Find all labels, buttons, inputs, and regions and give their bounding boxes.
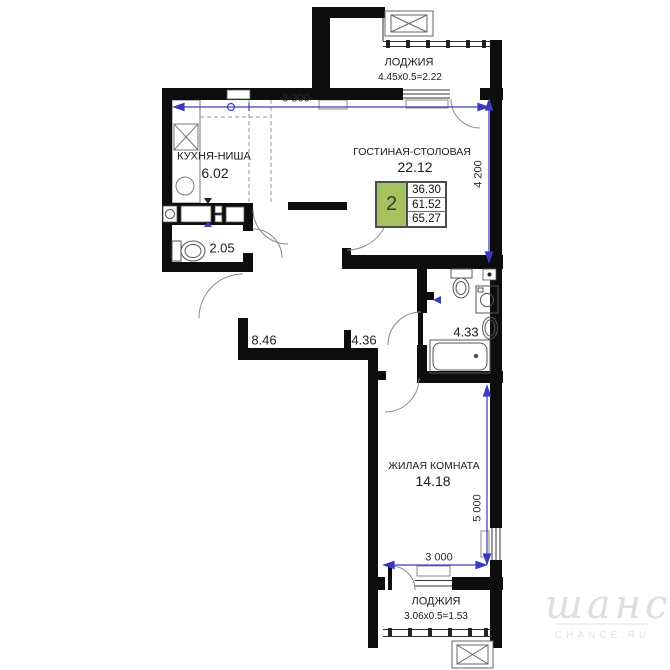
apartment-summary-box: 2 36.30 61.52 65.27	[375, 181, 447, 228]
wc-fixtures	[172, 241, 205, 261]
room-label-kitchen: КУХНЯ-НИША	[177, 152, 251, 163]
dimension-top-width: 8 300	[282, 94, 310, 105]
watermark-script: шанс	[545, 582, 660, 628]
room-area-bedroom: 14.18	[415, 474, 450, 488]
loggia-top-label: ЛОДЖИЯ	[385, 58, 434, 69]
room-label-bedroom: ЖИЛАЯ КОМНАТА	[388, 461, 479, 472]
summary-areas: 36.30 61.52 65.27	[408, 183, 445, 226]
room-area-living: 22.12	[397, 160, 432, 174]
dimension-right-height: 4 200	[474, 160, 485, 188]
dimension-bedroom-height: 5 000	[473, 494, 484, 522]
loggia-bottom-label: ЛОДЖИЯ	[412, 597, 461, 608]
watermark: шанс CHANCE.RU	[545, 582, 660, 641]
total-area-value: 65.27	[408, 212, 445, 226]
vent-shaft-top	[385, 11, 433, 36]
room-area-wc: 2.05	[209, 242, 234, 255]
room-label-living: ГОСТИНАЯ-СТОЛОВАЯ	[353, 147, 471, 158]
rooms-count-cell: 2	[377, 183, 408, 226]
floor-plan-drawing	[0, 0, 670, 670]
area-without-loggia-value: 61.52	[408, 198, 445, 213]
bathroom-fixtures	[430, 269, 498, 373]
loggia-top-calc: 4.45x0.5=2.22	[378, 73, 442, 83]
loggia-bottom-calc: 3.06x0.5=1.53	[404, 612, 468, 622]
watermark-site: CHANCE.RU	[545, 630, 660, 641]
room-area-hall: 8.46	[251, 334, 276, 347]
floor-plan: КУХНЯ-НИША 6.02 ГОСТИНАЯ-СТОЛОВАЯ 22.12 …	[0, 0, 670, 670]
dimension-bedroom-width: 3 000	[425, 553, 453, 564]
room-area-bathroom: 4.33	[453, 326, 478, 339]
vent-dot	[488, 273, 492, 277]
vent-shaft-bottom	[452, 641, 493, 668]
room-area-kitchen: 6.02	[201, 166, 228, 180]
room-area-corridor: 4.36	[351, 334, 376, 347]
living-area-value: 36.30	[408, 183, 445, 198]
